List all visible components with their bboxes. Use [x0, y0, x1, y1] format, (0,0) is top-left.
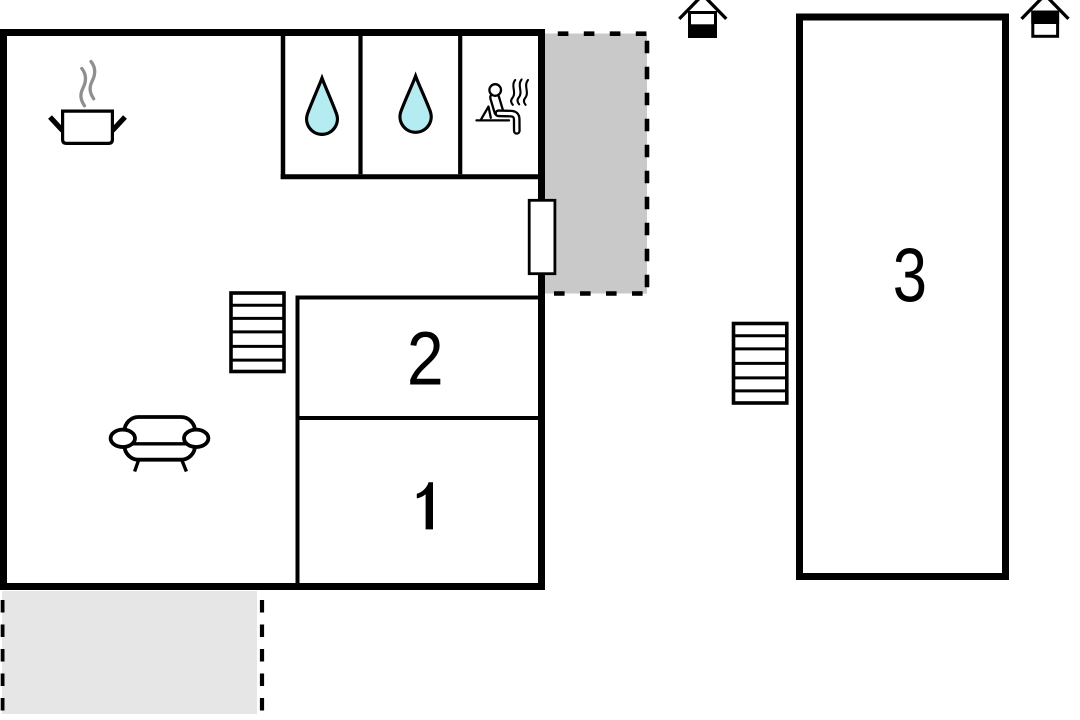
svg-text:2: 2	[407, 317, 444, 401]
svg-text:3: 3	[893, 232, 927, 318]
